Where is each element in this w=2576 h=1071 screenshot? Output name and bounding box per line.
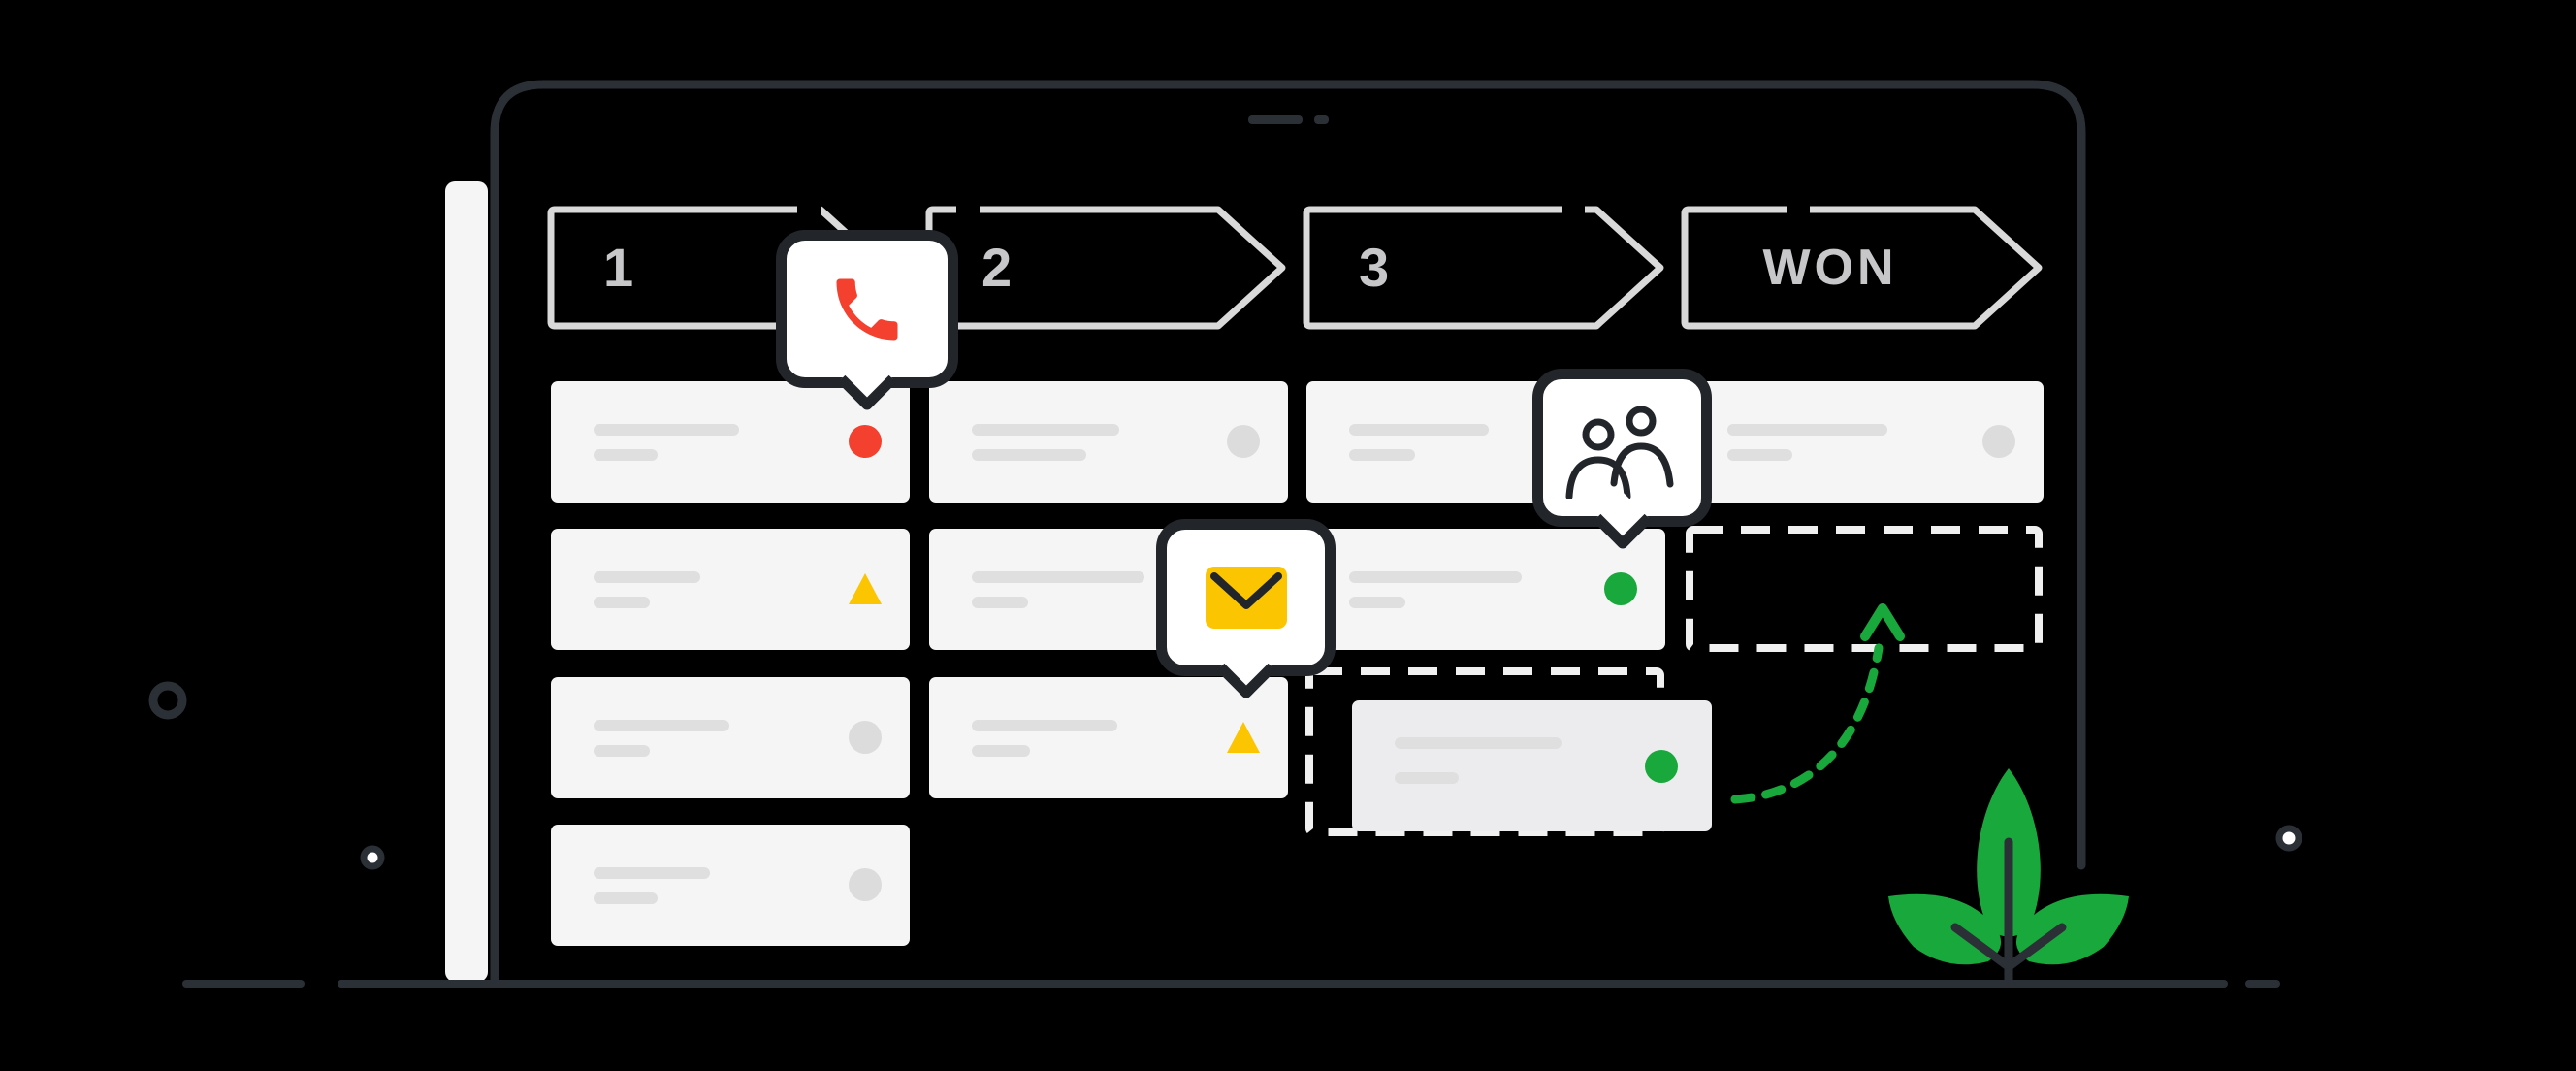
- gray-dot-indicator: [849, 868, 882, 901]
- placeholder-line: [972, 571, 1144, 583]
- placeholder-line: [594, 867, 710, 879]
- placeholder-line: [1349, 571, 1522, 583]
- deal-card[interactable]: [1306, 529, 1665, 650]
- placeholder-line: [1349, 424, 1489, 436]
- pipeline-illustration: 1 2 3 WON: [0, 0, 2576, 1071]
- deal-card[interactable]: [1685, 381, 2044, 503]
- placeholder-line: [1349, 597, 1405, 608]
- placeholder-line: [1727, 449, 1792, 461]
- green-dot-indicator: [1645, 750, 1678, 783]
- red-dot-indicator: [849, 425, 882, 458]
- contacts-activity-tooltip: [1532, 369, 1712, 527]
- email-activity-tooltip: [1156, 519, 1336, 676]
- gray-dot-indicator: [1982, 425, 2015, 458]
- placeholder-line: [972, 449, 1086, 461]
- deal-card[interactable]: [929, 677, 1288, 798]
- placeholder-line: [594, 720, 729, 731]
- placeholder-line: [594, 892, 658, 904]
- placeholder-line: [1395, 772, 1459, 784]
- placeholder-line: [1349, 449, 1415, 461]
- phone-icon: [826, 269, 908, 350]
- deal-card[interactable]: [929, 381, 1288, 503]
- placeholder-line: [972, 745, 1030, 757]
- placeholder-line: [594, 571, 700, 583]
- people-icon: [1563, 398, 1682, 499]
- envelope-icon: [1206, 567, 1287, 629]
- gray-dot-indicator: [849, 721, 882, 754]
- placeholder-line: [1727, 424, 1887, 436]
- placeholder-line: [594, 597, 650, 608]
- placeholder-line: [1395, 737, 1562, 749]
- placeholder-line: [594, 745, 650, 757]
- deal-card[interactable]: [551, 529, 910, 650]
- yellow-triangle-indicator: [1227, 722, 1260, 753]
- placeholder-line: [594, 449, 658, 461]
- gray-dot-indicator: [1227, 425, 1260, 458]
- dragged-deal-card[interactable]: [1352, 700, 1712, 831]
- placeholder-line: [594, 424, 739, 436]
- deal-card[interactable]: [551, 677, 910, 798]
- placeholder-line: [972, 597, 1028, 608]
- yellow-triangle-indicator: [849, 573, 882, 604]
- placeholder-line: [972, 720, 1117, 731]
- placeholder-line: [972, 424, 1119, 436]
- green-dot-indicator: [1604, 572, 1637, 605]
- deal-card[interactable]: [551, 825, 910, 946]
- call-activity-tooltip: [776, 230, 958, 388]
